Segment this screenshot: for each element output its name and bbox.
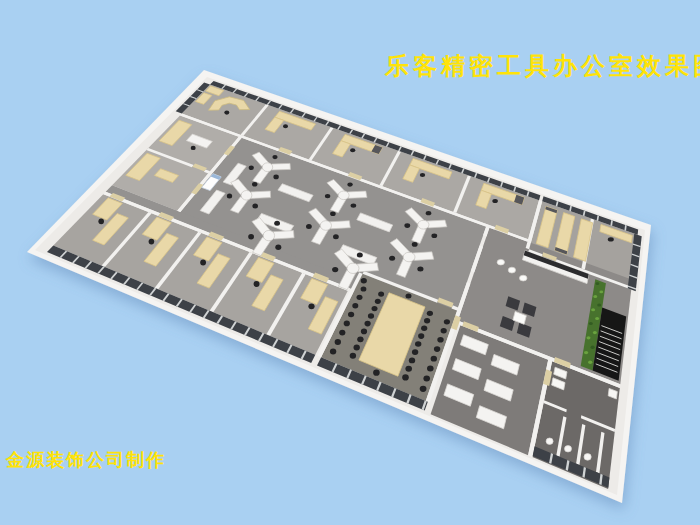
office-chair [191,146,196,150]
office-chair [275,245,281,250]
office-chair [149,239,155,245]
y-desk-hub [241,191,252,201]
conference-chair [421,326,427,331]
y-desk-arm [357,263,379,272]
office-chair [389,256,395,261]
office-chair [608,237,614,241]
office-chair [325,194,330,198]
plant-leaf [595,317,599,320]
conference-chair [339,330,345,336]
conference-chair [354,344,360,350]
plant-leaf [591,308,595,311]
conference-chair [368,313,374,318]
office-chair [273,175,278,180]
bar-stool [508,267,515,273]
conference-chair [424,318,430,323]
toilet [546,438,553,444]
y-desk-arm [251,191,271,199]
y-desk-arm [348,191,368,198]
conference-chair [406,294,412,299]
conference-chair [434,346,440,352]
plant-leaf [593,331,597,334]
conference-chair [427,365,434,371]
office-chair [492,199,498,203]
office-chair [347,183,352,187]
plant-leaf [597,304,601,307]
office-chair [98,218,104,224]
y-desk-hub [338,191,349,200]
office-chair [357,253,363,258]
conference-chair [437,337,443,343]
office-chair [330,211,336,216]
conference-chair [352,303,358,308]
conference-chair [378,292,384,297]
office-chair [252,203,258,208]
office-chair [306,224,312,229]
y-desk-hub [263,230,274,240]
bar-stool [497,259,504,265]
office-chair [272,155,277,159]
plant-leaf [588,361,592,364]
conference-chair [415,341,421,347]
plant-leaf [593,295,597,298]
office-chair [332,267,338,272]
y-desk-arm [427,220,447,228]
office-chair [252,182,257,187]
conference-chair [361,329,367,335]
office-chair [404,223,410,228]
conference-chair [348,312,354,318]
office-chair [227,194,232,199]
office-chair [224,111,229,115]
conference-chair [350,353,356,359]
poster-background: 乐客精密工具办公室效果图 金源装饰公司制作 [0,0,700,525]
toilet [565,446,572,452]
floorplan-3d-render [0,0,700,525]
y-desk-arm [273,231,294,239]
plant-leaf [599,291,603,294]
office-chair [333,234,339,239]
conference-chair [365,321,371,327]
office-chair [200,260,206,266]
conference-chair [423,376,430,382]
office-chair [254,281,260,287]
conference-chair [357,336,363,342]
conference-chair [361,286,367,291]
conference-chair [375,299,381,304]
y-desk-hub [262,163,272,172]
conference-chair [335,339,341,345]
conference-chair [344,321,350,327]
conference-chair [418,333,424,339]
conference-chair [441,328,447,333]
office-chair [412,242,418,247]
toilet [584,454,591,461]
office-chair [350,148,355,152]
plant-leaf [596,282,600,285]
y-desk-hub [418,220,429,229]
office-chair [248,234,254,239]
plant-leaf [591,346,595,349]
office-chair [431,233,437,238]
conference-chair [409,358,415,364]
office-chair [351,203,357,207]
conference-chair [427,311,433,316]
conference-chair [431,356,437,362]
plant-leaf [584,351,588,354]
plant-leaf [589,322,593,325]
office-chair [426,211,432,215]
conference-chair [330,349,336,355]
office-chair [361,278,367,283]
y-desk-arm [272,163,291,170]
y-desk-hub [347,263,359,273]
conference-chair [402,374,409,380]
conference-chair [373,370,380,376]
office-chair [274,221,280,226]
y-desk-hub [320,221,331,231]
y-desk-arm [413,252,434,261]
conference-chair [372,306,378,311]
office-chair [420,173,425,177]
office-chair [417,267,423,272]
conference-chair [405,366,412,372]
office-floorplan [27,70,651,503]
y-desk-hub [403,252,415,262]
office-chair [283,124,288,128]
office-chair [249,166,254,171]
y-desk-arm [330,221,350,229]
bar-stool [519,275,527,281]
conference-chair [444,319,450,324]
conference-chair [420,386,427,392]
conference-chair [357,295,363,300]
plant-leaf [587,336,591,339]
office-chair [308,303,314,309]
conference-chair [412,349,418,355]
